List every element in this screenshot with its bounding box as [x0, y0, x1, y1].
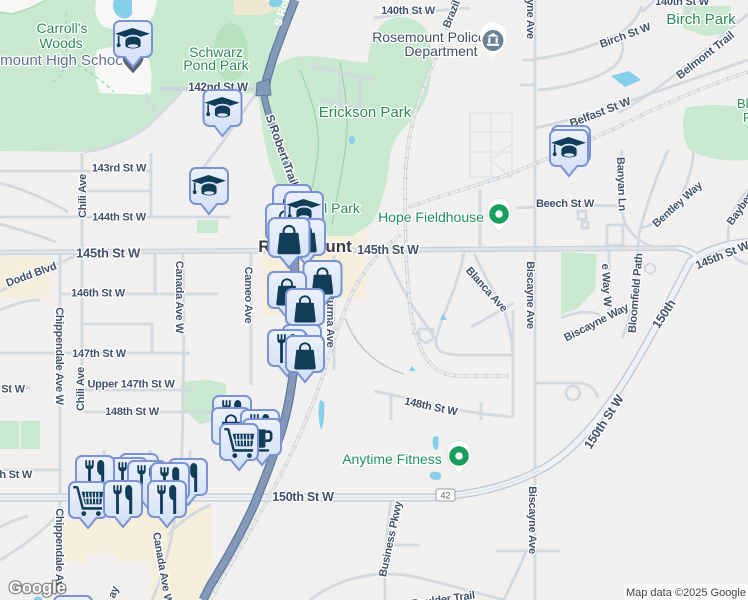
svg-text:Banyan Ln: Banyan Ln	[614, 157, 628, 212]
svg-text:Biscayne Ave: Biscayne Ave	[524, 0, 536, 39]
svg-text:Department: Department	[404, 43, 477, 59]
svg-text:Beech St W: Beech St W	[536, 198, 595, 210]
svg-text:Biscayne Ave: Biscayne Ave	[524, 261, 536, 329]
svg-text:Anytime Fitness: Anytime Fitness	[342, 451, 442, 467]
svg-text:140th St W: 140th St W	[381, 5, 436, 17]
svg-text:e Way W: e Way W	[599, 263, 613, 308]
svg-text:Chippendale Ave W: Chippendale Ave W	[53, 307, 65, 405]
svg-text:147th St W: 147th St W	[72, 348, 127, 360]
svg-text:150th St W: 150th St W	[272, 490, 334, 504]
svg-text:Pond Park: Pond Park	[183, 57, 249, 73]
svg-text:Canada Ave W: Canada Ave W	[173, 261, 185, 334]
svg-text:42: 42	[440, 491, 450, 501]
svg-text:Carroll's: Carroll's	[37, 20, 88, 36]
svg-text:Rosemount High School: Rosemount High School	[0, 52, 127, 69]
svg-text:145th St W: 145th St W	[76, 246, 141, 261]
svg-text:144th St W: 144th St W	[92, 212, 147, 224]
svg-text:Google: Google	[9, 579, 66, 597]
svg-text:Biscayne Ave: Biscayne Ave	[526, 486, 538, 554]
svg-text:146th St W: 146th St W	[71, 288, 126, 300]
svg-text:Birch Park: Birch Park	[666, 11, 736, 28]
svg-text:Bloo: Bloo	[737, 96, 748, 111]
svg-text:th St W: th St W	[0, 469, 33, 481]
svg-text:Chili Ave: Chili Ave	[77, 174, 89, 218]
svg-text:Map data ©2025 Google: Map data ©2025 Google	[626, 587, 746, 599]
svg-text:143rd St W: 143rd St W	[92, 163, 147, 175]
svg-text:Upper 147th St W: Upper 147th St W	[87, 379, 175, 391]
svg-text:Erickson Park: Erickson Park	[319, 104, 412, 121]
svg-text:Chili Ave: Chili Ave	[75, 367, 87, 411]
svg-text:Woods: Woods	[39, 35, 82, 51]
svg-text:140th St W: 140th St W	[655, 0, 710, 8]
svg-text:148th St W: 148th St W	[105, 406, 160, 418]
svg-text:St W: St W	[1, 384, 25, 396]
svg-text:Hope Fieldhouse: Hope Fieldhouse	[378, 209, 484, 225]
svg-text:Cameo Ave: Cameo Ave	[242, 267, 254, 324]
svg-text:Pa: Pa	[743, 110, 748, 125]
svg-text:145th St W: 145th St W	[357, 243, 419, 257]
